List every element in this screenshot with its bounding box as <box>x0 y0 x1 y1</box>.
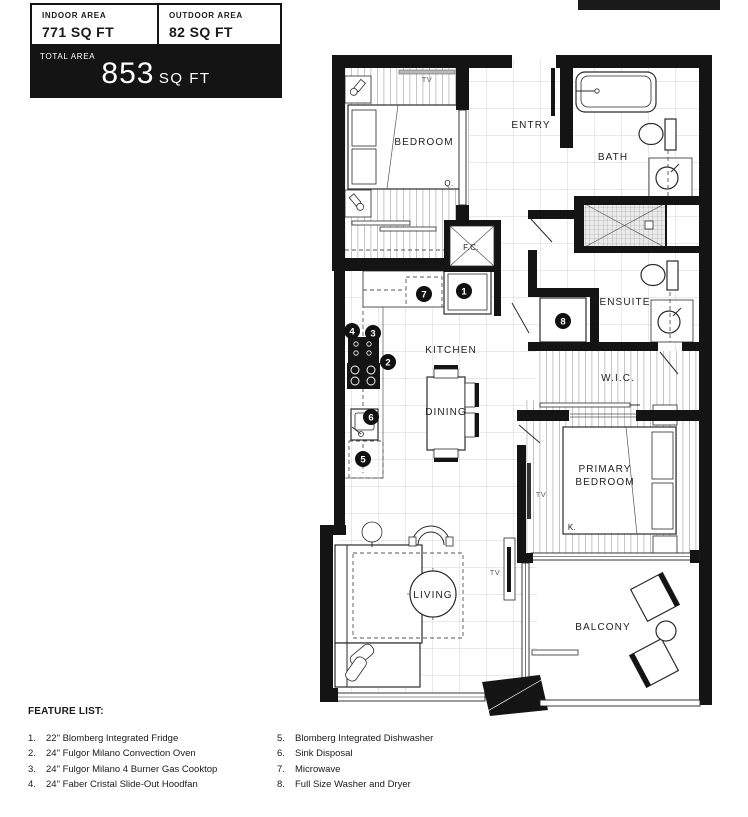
svg-text:7: 7 <box>421 290 426 301</box>
svg-text:3: 3 <box>370 329 375 340</box>
marker-1: 1 <box>456 283 472 299</box>
label-balcony: BALCONY <box>575 622 631 633</box>
marker-2: 2 <box>380 354 396 370</box>
label-king-bed: K. <box>568 523 576 532</box>
label-wic: W.I.C. <box>601 373 635 384</box>
feature-list-left-column: 1.22" Blomberg Integrated Fridge 2.24" F… <box>28 731 217 793</box>
feature-item-8: 8.Full Size Washer and Dryer <box>277 777 433 792</box>
floor-plan: BEDROOM ENTRY BATH ENSUITE KITCHEN DININ… <box>0 0 748 817</box>
label-primary-line1: PRIMARY <box>578 464 631 475</box>
svg-text:6: 6 <box>368 413 373 424</box>
label-queen-bed: Q. <box>444 179 453 188</box>
feature-item-7: 7.Microwave <box>277 762 433 777</box>
bedroom-nightstand-bottom <box>345 190 371 217</box>
svg-text:4: 4 <box>349 327 355 338</box>
tv-label-living: TV <box>490 568 500 577</box>
feature-item-2: 2.24" Fulgor Milano Convection Oven <box>28 746 217 761</box>
primary-tv <box>527 463 531 519</box>
bedroom-tv <box>399 70 455 74</box>
svg-text:8: 8 <box>560 317 565 328</box>
feature-item-1: 1.22" Blomberg Integrated Fridge <box>28 731 217 746</box>
bedroom-nightstand-top <box>345 76 371 103</box>
feature-item-3: 3.24" Fulgor Milano 4 Burner Gas Cooktop <box>28 762 217 777</box>
tv-label-bedroom: TV <box>422 75 432 84</box>
marker-7: 7 <box>416 286 432 302</box>
balcony-ledge <box>532 650 578 655</box>
svg-text:1: 1 <box>461 287 467 298</box>
label-bath: BATH <box>598 152 628 163</box>
label-fan-coil: F.C. <box>463 243 479 252</box>
marker-3: 3 <box>365 325 381 341</box>
marker-8: 8 <box>555 313 571 329</box>
label-primary-line2: BEDROOM <box>575 477 634 488</box>
label-ensuite: ENSUITE <box>599 297 650 308</box>
feature-item-4: 4.24" Faber Cristal Slide-Out Hoodfan <box>28 777 217 792</box>
svg-text:5: 5 <box>360 455 366 466</box>
bathtub <box>576 72 656 112</box>
cooktop-oven <box>347 337 380 389</box>
label-living: LIVING <box>413 590 452 601</box>
feature-item-6: 6.Sink Disposal <box>277 746 433 761</box>
sofa <box>335 545 422 687</box>
marker-4: 4 <box>344 323 360 339</box>
balcony-edge <box>540 700 700 706</box>
label-entry: ENTRY <box>511 120 550 131</box>
feature-list: FEATURE LIST: 1.22" Blomberg Integrated … <box>28 706 508 717</box>
entry-door-leaf <box>551 68 555 116</box>
tv-label-primary: TV <box>536 490 546 499</box>
feature-item-5: 5.Blomberg Integrated Dishwasher <box>277 731 433 746</box>
label-bedroom: BEDROOM <box>394 137 453 148</box>
feature-list-right-column: 5.Blomberg Integrated Dishwasher 6.Sink … <box>277 731 433 793</box>
balcony-table <box>656 621 676 641</box>
label-dining: DINING <box>425 407 467 418</box>
feature-list-title: FEATURE LIST: <box>28 706 508 717</box>
marker-5: 5 <box>355 451 371 467</box>
marker-6: 6 <box>363 409 379 425</box>
label-kitchen: KITCHEN <box>425 345 477 356</box>
living-tv-console <box>504 538 515 600</box>
svg-text:2: 2 <box>385 358 390 369</box>
bedroom-glass-wall <box>459 110 466 205</box>
